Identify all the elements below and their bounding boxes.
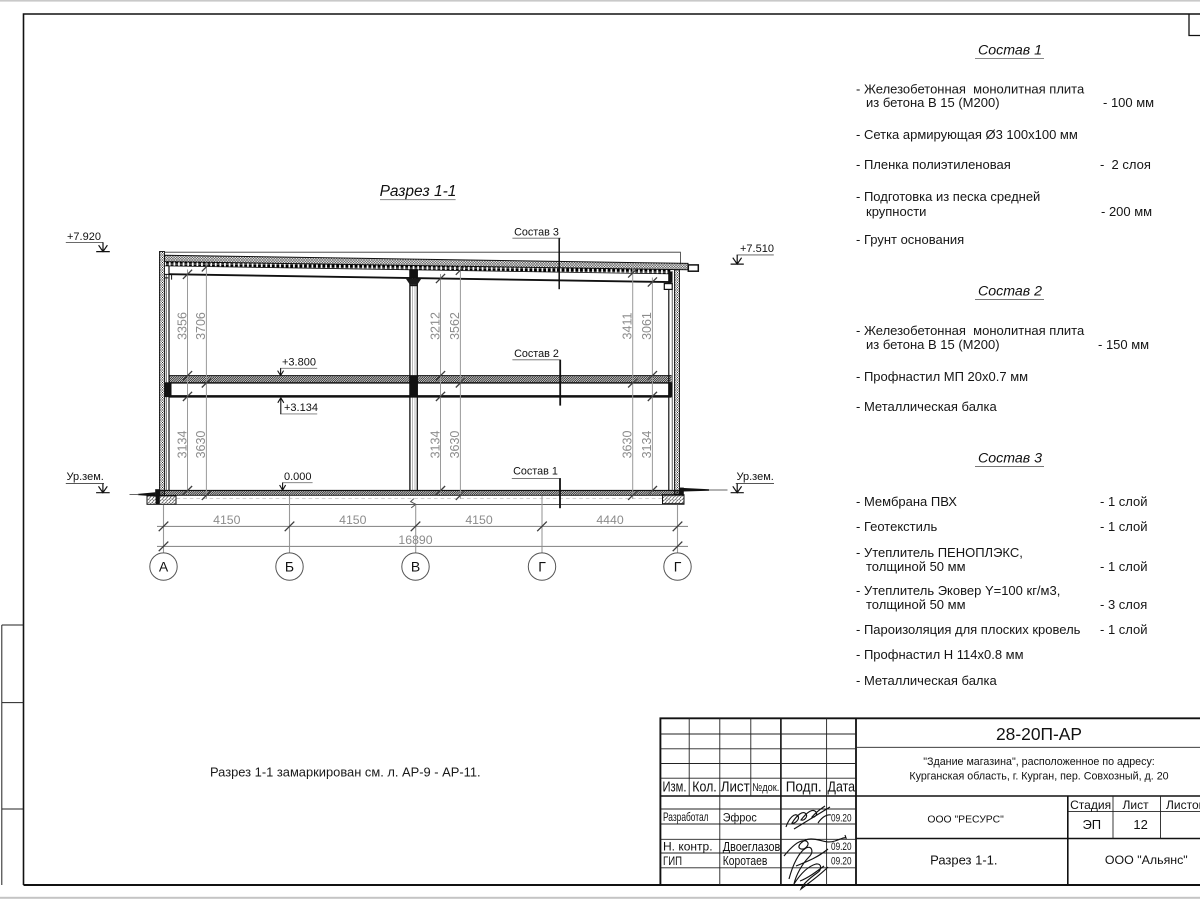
svg-text:Б: Б bbox=[285, 558, 294, 574]
svg-text:Ур.зем.: Ур.зем. bbox=[67, 471, 104, 483]
svg-text:- 1 слой: - 1 слой bbox=[1100, 559, 1148, 574]
svg-text:Разрез 1-1: Разрез 1-1 bbox=[380, 183, 457, 200]
svg-text:- Грунт основания: - Грунт основания bbox=[856, 232, 964, 247]
svg-text:- Пленка полиэтиленовая: - Пленка полиэтиленовая bbox=[856, 157, 1011, 172]
svg-text:ГИП: ГИП bbox=[663, 854, 682, 868]
svg-text:- Сетка армирующая Ø3 100х100: - Сетка армирующая Ø3 100х100 мм bbox=[856, 127, 1078, 142]
svg-text:Состав 3: Состав 3 bbox=[978, 451, 1042, 467]
svg-text:4150: 4150 bbox=[465, 513, 493, 527]
svg-text:Коротаев: Коротаев bbox=[723, 853, 768, 868]
svg-text:+3.800: +3.800 bbox=[282, 356, 316, 368]
svg-text:Лист: Лист bbox=[1123, 798, 1150, 812]
svg-text:12: 12 bbox=[1133, 817, 1147, 832]
svg-text:Н. контр.: Н. контр. bbox=[663, 840, 713, 854]
svg-text:Листов: Листов bbox=[1166, 798, 1200, 812]
svg-text:№док.: №док. bbox=[752, 782, 779, 794]
svg-text:3630: 3630 bbox=[448, 431, 462, 459]
svg-text:Дата: Дата bbox=[828, 780, 856, 796]
svg-text:толщиной 50 мм: толщиной 50 мм bbox=[866, 559, 966, 574]
svg-text:3562: 3562 bbox=[448, 312, 462, 340]
svg-text:- Подготовка из песка средней: - Подготовка из песка средней bbox=[856, 189, 1040, 204]
svg-text:3061: 3061 bbox=[640, 312, 654, 340]
svg-text:Стадия: Стадия bbox=[1070, 798, 1111, 812]
svg-text:- Профнастил МП 20х0.7 мм: - Профнастил МП 20х0.7 мм bbox=[856, 369, 1028, 384]
svg-text:- Профнастил Н 114х0.8 мм: - Профнастил Н 114х0.8 мм bbox=[856, 647, 1024, 662]
svg-text:+3.134: +3.134 bbox=[284, 402, 318, 414]
svg-text:0.000: 0.000 bbox=[284, 471, 312, 483]
svg-text:4150: 4150 bbox=[339, 513, 367, 527]
svg-text:Разрез 1-1.: Разрез 1-1. bbox=[930, 853, 997, 868]
svg-text:из бетона В 15 (М200): из бетона В 15 (М200) bbox=[866, 95, 1000, 110]
svg-text:- 1 слой: - 1 слой bbox=[1100, 519, 1148, 534]
svg-text:Подп.: Подп. bbox=[786, 780, 822, 796]
svg-text:3134: 3134 bbox=[640, 431, 654, 459]
svg-text:- Железобетонная монолитная п: - Железобетонная монолитная плита bbox=[856, 323, 1085, 338]
svg-text:А: А bbox=[159, 558, 169, 574]
svg-text:- 100 мм: - 100 мм bbox=[1103, 95, 1154, 110]
svg-text:Состав 2: Состав 2 bbox=[978, 284, 1042, 300]
svg-text:- Металлическая балка: - Металлическая балка bbox=[856, 673, 997, 688]
svg-text:3630: 3630 bbox=[194, 431, 208, 459]
svg-text:Состав 2: Состав 2 bbox=[514, 348, 559, 360]
svg-text:Кол.: Кол. bbox=[692, 780, 717, 796]
svg-text:3134: 3134 bbox=[175, 431, 189, 459]
svg-text:Курганская область, г. Курган,: Курганская область, г. Курган, пер. Совх… bbox=[909, 771, 1168, 783]
svg-text:16890: 16890 bbox=[398, 533, 432, 547]
svg-text:ЭП: ЭП bbox=[1082, 817, 1101, 832]
svg-text:- Утеплитель Эковер Y=100 кг/м: - Утеплитель Эковер Y=100 кг/м3, bbox=[856, 583, 1060, 598]
svg-text:Состав 1: Состав 1 bbox=[513, 466, 558, 478]
svg-text:- Мембрана ПВХ: - Мембрана ПВХ bbox=[856, 494, 957, 509]
svg-text:Разрез 1-1 замаркирован см. л.: Разрез 1-1 замаркирован см. л. АР-9 - АР… bbox=[210, 765, 481, 780]
svg-text:4150: 4150 bbox=[213, 513, 241, 527]
svg-text:- 2 слоя: - 2 слоя bbox=[1100, 157, 1151, 172]
svg-text:Состав 1: Состав 1 bbox=[978, 43, 1042, 59]
svg-text:Изм.: Изм. bbox=[663, 780, 687, 796]
svg-text:Двоеглазов: Двоеглазов bbox=[723, 839, 781, 854]
svg-text:- 200 мм: - 200 мм bbox=[1101, 204, 1152, 219]
svg-text:4440: 4440 bbox=[596, 513, 624, 527]
svg-text:из бетона В 15 (М200): из бетона В 15 (М200) bbox=[866, 337, 1000, 352]
svg-text:09.20: 09.20 bbox=[831, 841, 852, 853]
svg-text:3134: 3134 bbox=[428, 431, 442, 459]
svg-text:Г: Г bbox=[538, 558, 546, 574]
svg-text:+7.510: +7.510 bbox=[740, 243, 774, 255]
svg-text:3706: 3706 bbox=[194, 312, 208, 340]
svg-text:09.20: 09.20 bbox=[831, 856, 852, 868]
svg-text:- 1 слой: - 1 слой bbox=[1100, 494, 1148, 509]
svg-text:- 150 мм: - 150 мм bbox=[1098, 337, 1149, 352]
svg-text:толщиной 50 мм: толщиной 50 мм bbox=[866, 597, 966, 612]
svg-text:ООО "РЕСУРС": ООО "РЕСУРС" bbox=[927, 815, 1004, 826]
svg-text:3212: 3212 bbox=[428, 312, 442, 340]
svg-text:- Металлическая балка: - Металлическая балка bbox=[856, 399, 997, 414]
svg-text:- Пароизоляция для плоских кро: - Пароизоляция для плоских кровель bbox=[856, 622, 1081, 637]
svg-text:+7.920: +7.920 bbox=[67, 231, 101, 243]
svg-text:ООО "Альянс": ООО "Альянс" bbox=[1105, 853, 1188, 867]
svg-text:В: В bbox=[411, 558, 420, 574]
svg-text:Г: Г bbox=[674, 558, 682, 574]
svg-text:Состав 3: Состав 3 bbox=[514, 226, 559, 238]
svg-text:Ур.зем.: Ур.зем. bbox=[737, 471, 774, 483]
svg-text:Разработал: Разработал bbox=[663, 810, 709, 824]
svg-text:- 3 слоя: - 3 слоя bbox=[1100, 597, 1147, 612]
svg-text:- Геотекстиль: - Геотекстиль bbox=[856, 519, 937, 534]
svg-text:- 1 слой: - 1 слой bbox=[1100, 622, 1148, 637]
svg-text:28-20П-АР: 28-20П-АР bbox=[996, 724, 1082, 744]
svg-text:09.20: 09.20 bbox=[831, 813, 852, 825]
svg-text:3630: 3630 bbox=[621, 431, 635, 459]
svg-text:3356: 3356 bbox=[175, 312, 189, 340]
svg-text:"Здание магазина", расположенн: "Здание магазина", расположенное по адре… bbox=[923, 756, 1155, 768]
svg-text:крупности: крупности bbox=[866, 204, 926, 219]
svg-text:Эфрос: Эфрос bbox=[723, 811, 757, 825]
svg-text:Лист: Лист bbox=[721, 780, 750, 796]
svg-text:3411: 3411 bbox=[621, 313, 635, 340]
svg-text:- Утеплитель ПЕНОПЛЭКС,: - Утеплитель ПЕНОПЛЭКС, bbox=[856, 545, 1023, 560]
